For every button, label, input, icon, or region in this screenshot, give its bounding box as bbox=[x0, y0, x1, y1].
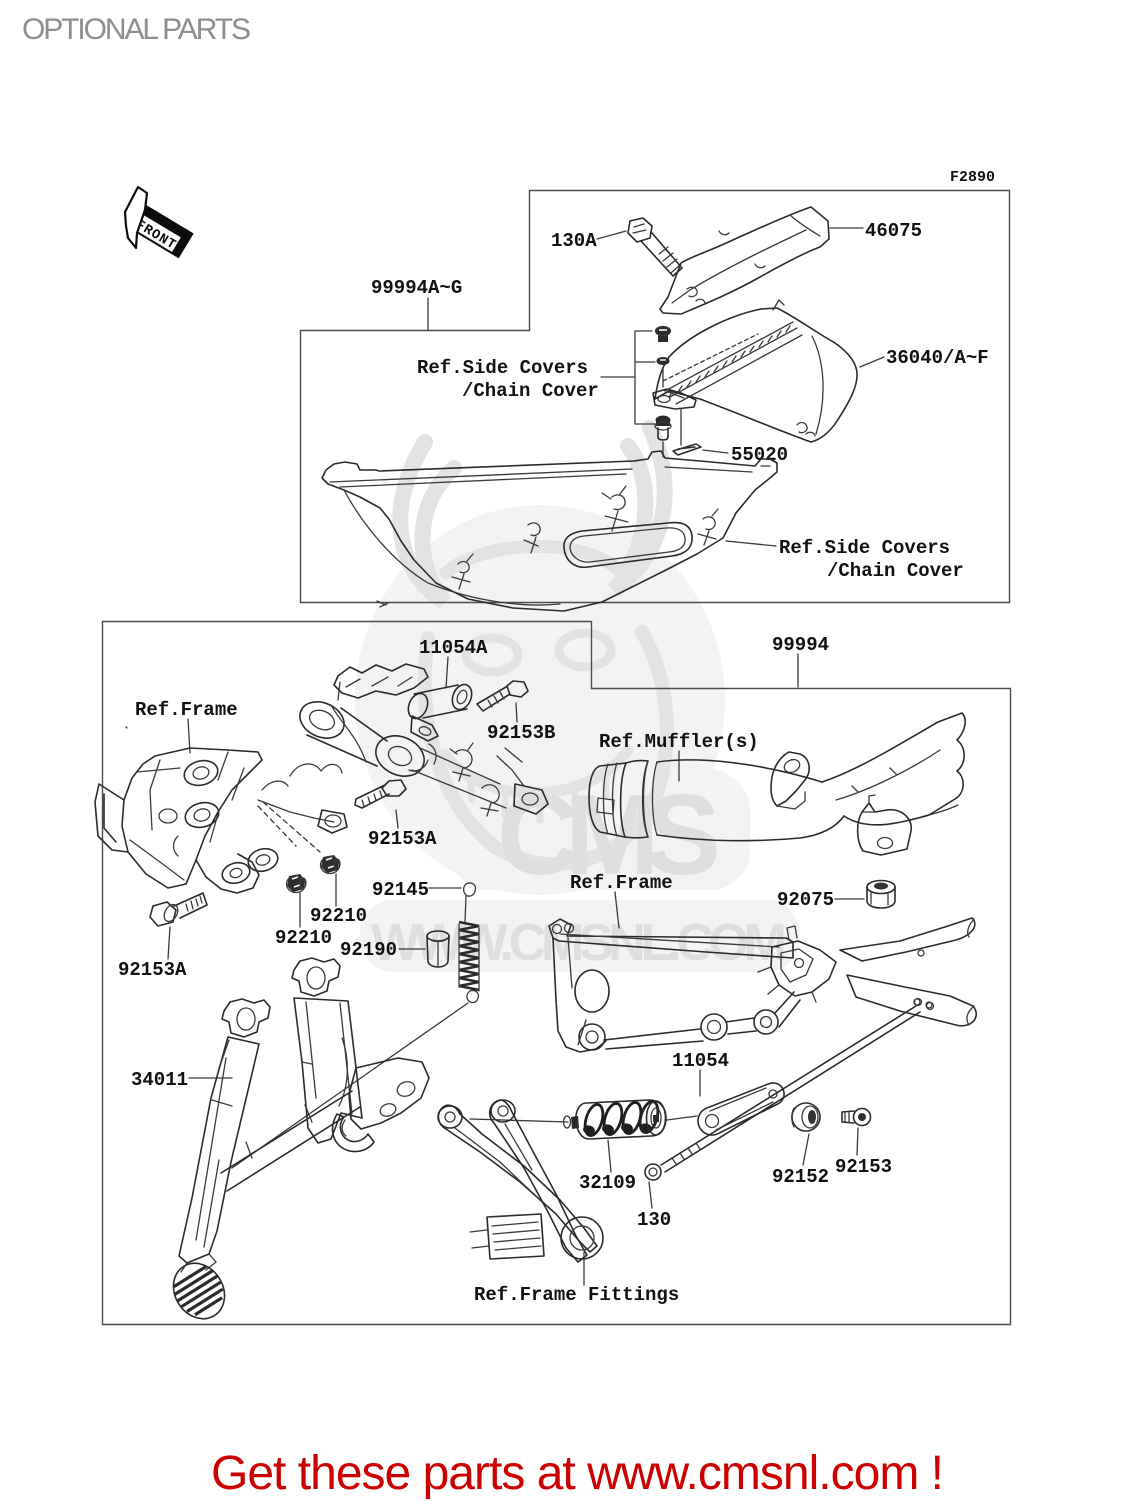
svg-text:92153: 92153 bbox=[835, 1156, 892, 1178]
svg-text:/Chain Cover: /Chain Cover bbox=[827, 560, 964, 582]
svg-text:92210: 92210 bbox=[275, 927, 332, 949]
svg-text:Ref.Frame: Ref.Frame bbox=[135, 699, 238, 721]
svg-text:Ref.Frame: Ref.Frame bbox=[570, 872, 673, 894]
svg-text:92075: 92075 bbox=[777, 889, 834, 911]
svg-text:Ref.Muffler(s): Ref.Muffler(s) bbox=[599, 731, 759, 753]
svg-text:55020: 55020 bbox=[731, 444, 788, 466]
svg-text:130A: 130A bbox=[551, 230, 597, 252]
svg-text:34011: 34011 bbox=[131, 1069, 188, 1091]
svg-text:F2890: F2890 bbox=[950, 169, 995, 186]
svg-text:11054A: 11054A bbox=[419, 637, 488, 659]
svg-text:92153A: 92153A bbox=[368, 828, 437, 850]
svg-text:92153A: 92153A bbox=[118, 959, 187, 981]
svg-text:92190: 92190 bbox=[340, 939, 397, 961]
svg-text:/Chain Cover: /Chain Cover bbox=[462, 380, 599, 402]
svg-text:Ref.Side Covers: Ref.Side Covers bbox=[779, 537, 950, 559]
svg-text:92210: 92210 bbox=[310, 905, 367, 927]
svg-text:92152: 92152 bbox=[772, 1166, 829, 1188]
svg-text:99994A~G: 99994A~G bbox=[371, 277, 462, 299]
svg-text:OPTIONAL PARTS: OPTIONAL PARTS bbox=[22, 13, 251, 46]
svg-text:32109: 32109 bbox=[579, 1172, 636, 1194]
svg-text:36040/A~F: 36040/A~F bbox=[886, 347, 989, 369]
svg-text:130: 130 bbox=[637, 1209, 671, 1231]
svg-text:Ref.Side Covers: Ref.Side Covers bbox=[417, 357, 588, 379]
svg-text:Get these parts at www.cmsnl.c: Get these parts at www.cmsnl.com ! bbox=[211, 1447, 944, 1500]
svg-text:92145: 92145 bbox=[372, 879, 429, 901]
svg-text:92153B: 92153B bbox=[487, 722, 555, 744]
svg-text:99994: 99994 bbox=[772, 634, 829, 656]
svg-text:Ref.Frame Fittings: Ref.Frame Fittings bbox=[474, 1284, 679, 1306]
svg-text:46075: 46075 bbox=[865, 220, 922, 242]
svg-text:11054: 11054 bbox=[672, 1050, 729, 1072]
